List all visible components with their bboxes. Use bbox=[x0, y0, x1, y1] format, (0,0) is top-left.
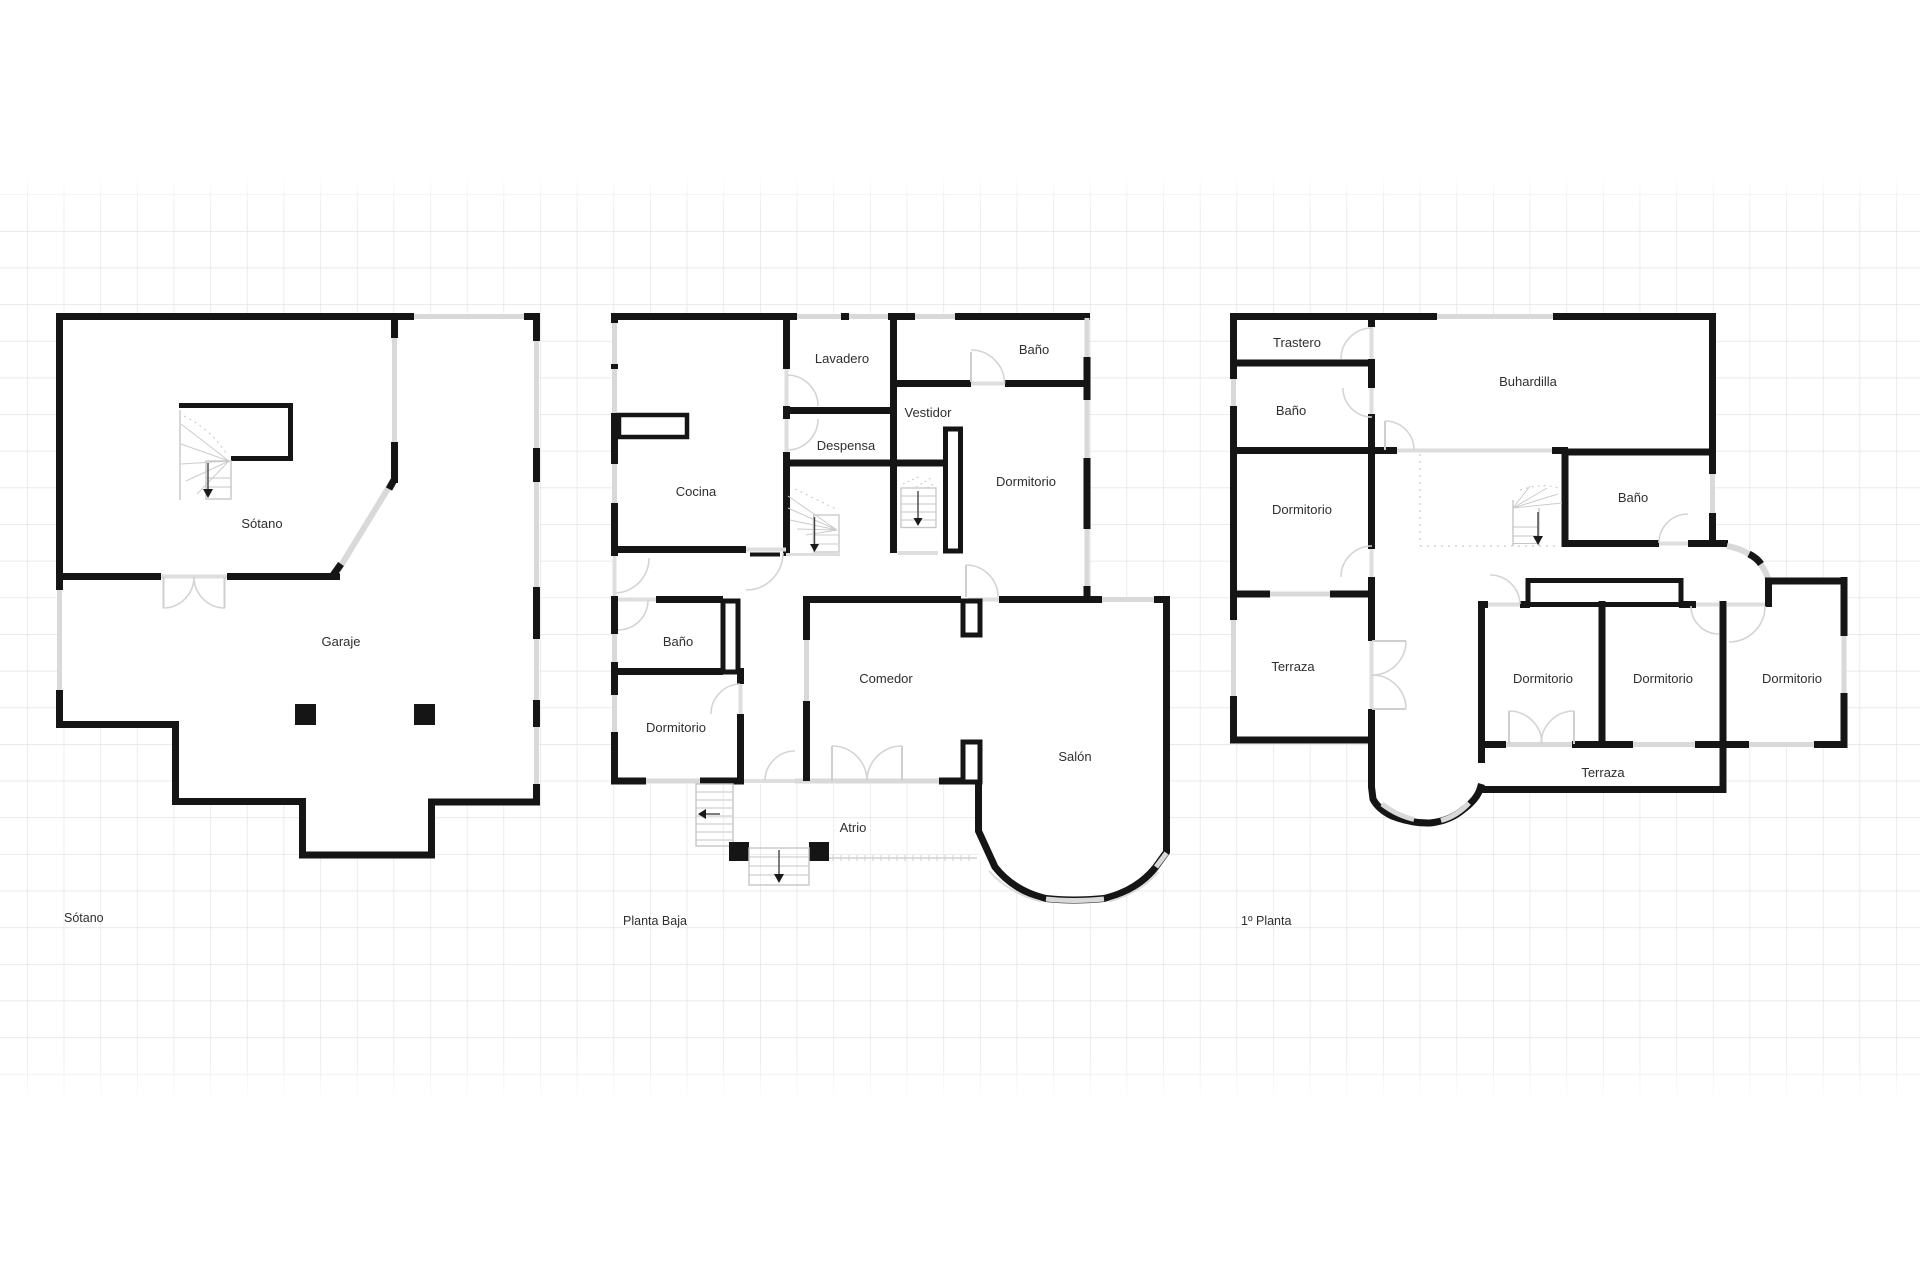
svg-text:Salón: Salón bbox=[1058, 749, 1091, 764]
svg-text:Dormitorio: Dormitorio bbox=[646, 720, 706, 735]
svg-text:Terraza: Terraza bbox=[1581, 765, 1625, 780]
svg-text:Despensa: Despensa bbox=[817, 438, 876, 453]
svg-text:Dormitorio: Dormitorio bbox=[1513, 671, 1573, 686]
svg-text:Sótano: Sótano bbox=[241, 516, 282, 531]
svg-text:Dormitorio: Dormitorio bbox=[1633, 671, 1693, 686]
svg-text:Dormitorio: Dormitorio bbox=[1272, 502, 1332, 517]
svg-text:Planta Baja: Planta Baja bbox=[623, 914, 687, 928]
svg-text:Baño: Baño bbox=[663, 634, 693, 649]
svg-text:Dormitorio: Dormitorio bbox=[996, 474, 1056, 489]
svg-text:Comedor: Comedor bbox=[859, 671, 913, 686]
svg-text:Baño: Baño bbox=[1276, 403, 1306, 418]
svg-text:Lavadero: Lavadero bbox=[815, 351, 869, 366]
svg-text:1º Planta: 1º Planta bbox=[1241, 914, 1291, 928]
svg-text:Dormitorio: Dormitorio bbox=[1762, 671, 1822, 686]
svg-text:Atrio: Atrio bbox=[840, 820, 867, 835]
svg-text:Cocina: Cocina bbox=[676, 484, 717, 499]
svg-text:Trastero: Trastero bbox=[1273, 335, 1321, 350]
svg-text:Terraza: Terraza bbox=[1271, 659, 1315, 674]
svg-text:Baño: Baño bbox=[1618, 490, 1648, 505]
svg-text:Garaje: Garaje bbox=[321, 634, 360, 649]
svg-text:Baño: Baño bbox=[1019, 342, 1049, 357]
svg-text:Buhardilla: Buhardilla bbox=[1499, 374, 1558, 389]
svg-text:Sótano: Sótano bbox=[64, 911, 104, 925]
svg-text:Vestidor: Vestidor bbox=[905, 405, 953, 420]
